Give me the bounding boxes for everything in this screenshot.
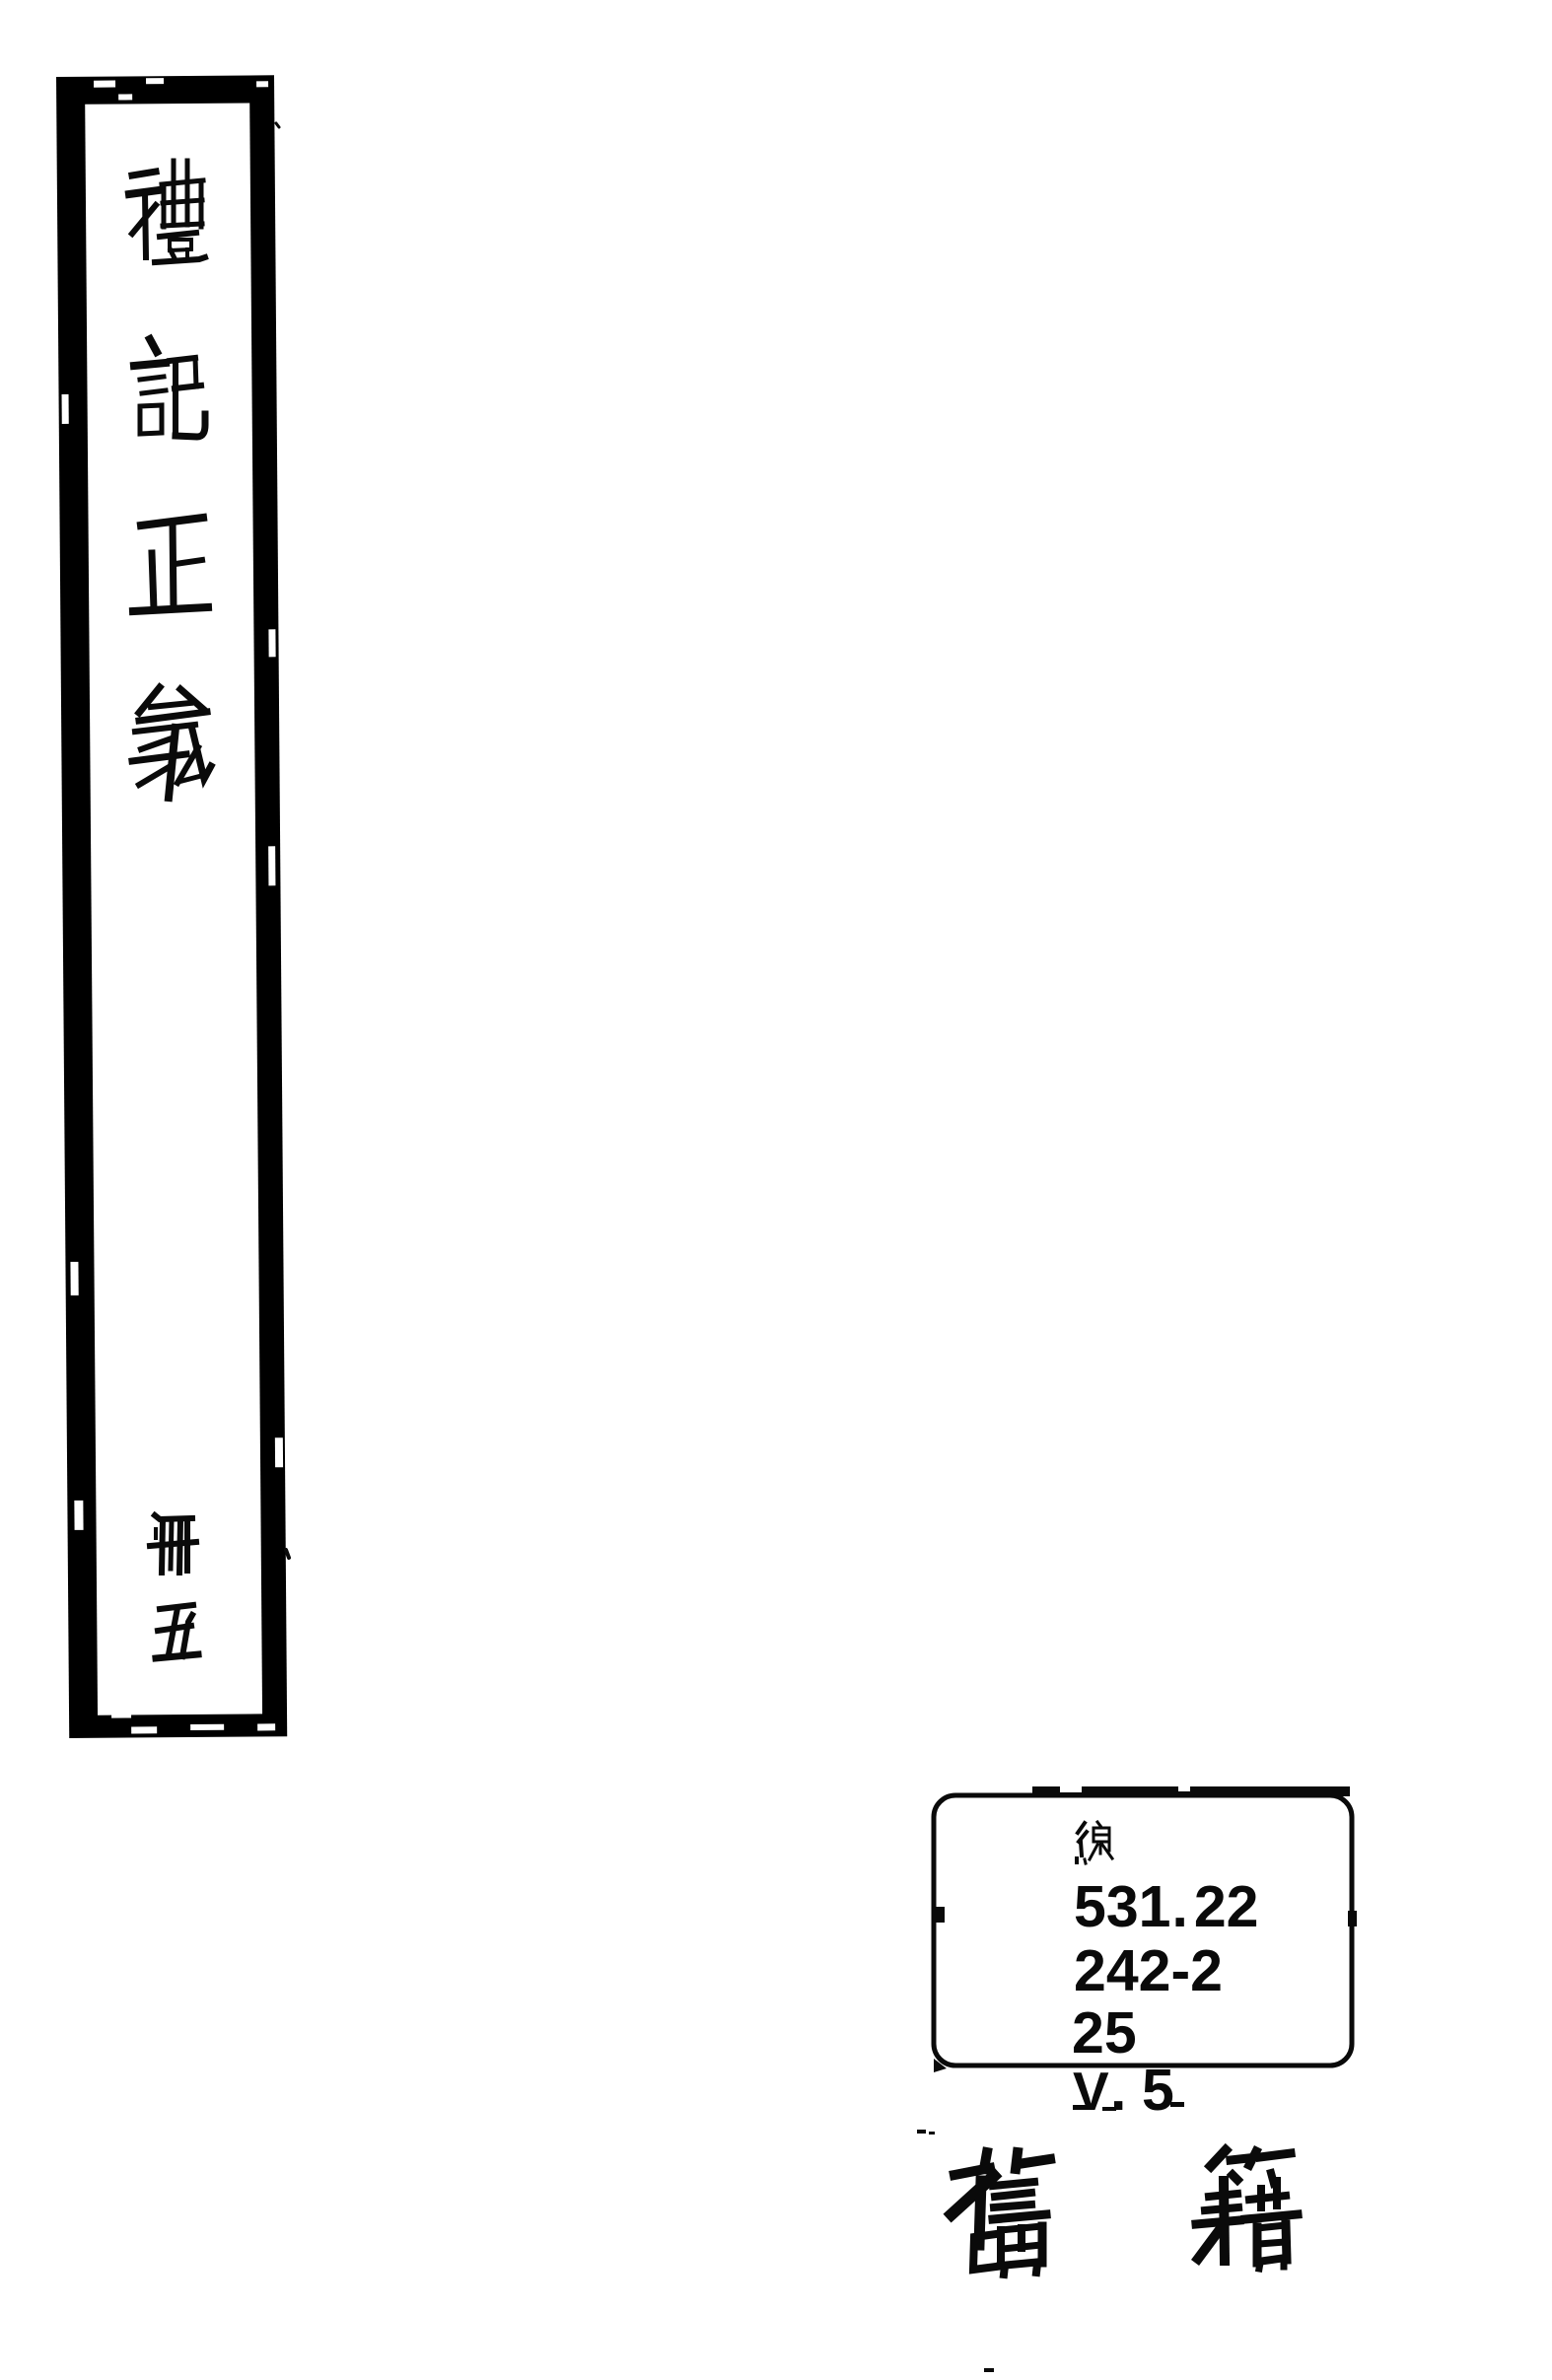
svg-text:.: . <box>1110 2058 1126 2123</box>
svg-text:V: V <box>1073 2061 1109 2122</box>
svg-text:242-2: 242-2 <box>1074 1938 1223 2003</box>
svg-text:25: 25 <box>1072 2000 1137 2065</box>
svg-text:5: 5 <box>1142 2058 1174 2123</box>
svg-text:531.22: 531.22 <box>1074 1874 1259 1939</box>
